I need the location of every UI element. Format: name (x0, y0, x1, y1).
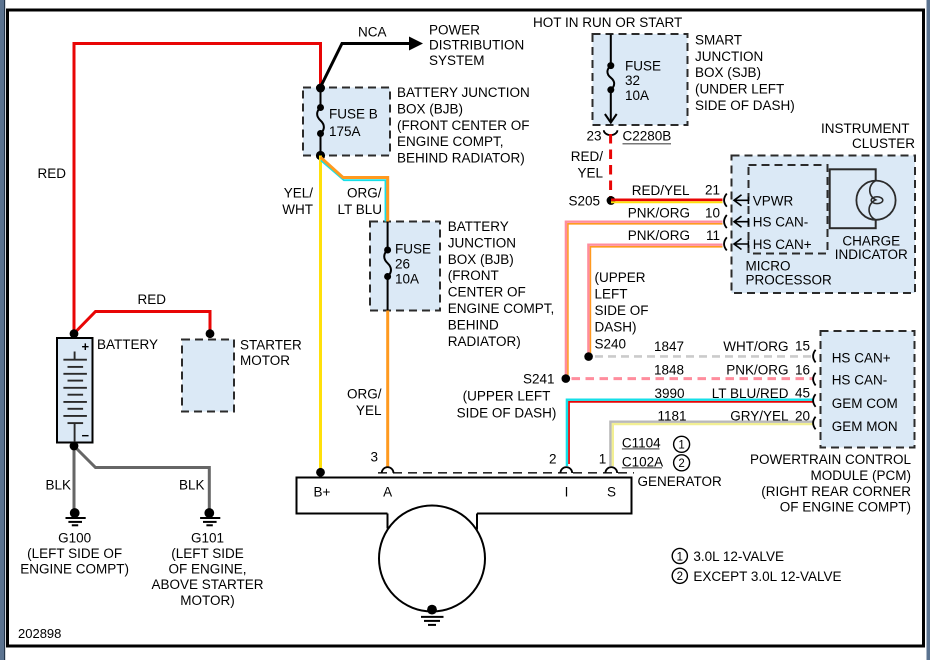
svg-text:YEL: YEL (356, 403, 382, 418)
svg-text:JUNCTION: JUNCTION (448, 235, 516, 250)
svg-text:ENGINE COMPT,: ENGINE COMPT, (448, 301, 555, 316)
svg-text:S240: S240 (595, 337, 627, 352)
svg-text:CENTER OF: CENTER OF (448, 285, 526, 300)
svg-text:10A: 10A (395, 271, 419, 286)
svg-text:EXCEPT 3.0L 12-VALVE: EXCEPT 3.0L 12-VALVE (693, 569, 841, 584)
svg-text:RED/: RED/ (571, 149, 604, 164)
svg-text:15: 15 (795, 338, 810, 353)
svg-text:1: 1 (599, 451, 607, 466)
svg-text:202898: 202898 (18, 626, 61, 641)
svg-text:ENGINE COMPT,: ENGINE COMPT, (397, 134, 504, 149)
svg-text:GEM MON: GEM MON (832, 419, 898, 434)
svg-text:(UPPER LEFT: (UPPER LEFT (463, 388, 551, 403)
svg-text:MOTOR: MOTOR (240, 353, 290, 368)
svg-text:32: 32 (625, 73, 640, 88)
svg-text:1181: 1181 (657, 408, 686, 423)
svg-text:HS CAN-: HS CAN- (753, 215, 809, 230)
svg-text:S: S (607, 485, 616, 500)
svg-text:(LEFT SIDE OF: (LEFT SIDE OF (27, 546, 122, 561)
svg-text:SIDE OF: SIDE OF (595, 303, 649, 318)
svg-text:ORG/: ORG/ (347, 387, 382, 402)
svg-text:WHT: WHT (282, 202, 313, 217)
svg-text:21: 21 (705, 183, 720, 198)
svg-text:OF ENGINE COMPT): OF ENGINE COMPT) (780, 500, 911, 515)
svg-text:G101: G101 (191, 530, 224, 545)
svg-text:STARTER: STARTER (240, 338, 302, 353)
svg-text:MOTOR): MOTOR) (180, 593, 235, 608)
svg-text:2: 2 (677, 571, 683, 583)
svg-text:HS CAN+: HS CAN+ (832, 351, 891, 366)
svg-text:(FRONT: (FRONT (448, 268, 499, 283)
svg-text:PNK/ORG: PNK/ORG (628, 228, 690, 243)
svg-text:(UPPER: (UPPER (595, 270, 646, 285)
svg-text:ABOVE STARTER: ABOVE STARTER (151, 577, 263, 592)
svg-text:2: 2 (549, 451, 557, 466)
svg-text:LEFT: LEFT (595, 287, 628, 302)
svg-text:POWER: POWER (429, 23, 480, 38)
svg-text:3: 3 (370, 450, 378, 465)
svg-text:10A: 10A (625, 88, 649, 103)
svg-text:POWERTRAIN CONTROL: POWERTRAIN CONTROL (750, 452, 912, 467)
svg-text:ENGINE COMPT): ENGINE COMPT) (20, 562, 129, 577)
svg-text:BATTERY JUNCTION: BATTERY JUNCTION (397, 85, 530, 100)
svg-text:PROCESSOR: PROCESSOR (746, 273, 833, 288)
svg-text:BLK: BLK (179, 478, 205, 493)
svg-text:SMART: SMART (695, 33, 742, 48)
svg-text:INDICATOR: INDICATOR (835, 247, 908, 262)
svg-text:JUNCTION: JUNCTION (695, 49, 763, 64)
svg-text:+: + (82, 339, 90, 354)
svg-text:FUSE: FUSE (625, 59, 661, 74)
svg-text:1848: 1848 (654, 362, 684, 377)
svg-text:S205: S205 (568, 193, 600, 208)
svg-text:OF ENGINE,: OF ENGINE, (168, 562, 246, 577)
svg-text:1: 1 (677, 551, 683, 563)
svg-text:175A: 175A (329, 124, 361, 139)
svg-text:45: 45 (795, 385, 810, 400)
svg-text:20: 20 (795, 408, 810, 423)
svg-text:FUSE B: FUSE B (329, 107, 378, 122)
svg-text:MODULE (PCM): MODULE (PCM) (811, 468, 912, 483)
svg-text:RADIATOR): RADIATOR) (448, 334, 521, 349)
svg-text:GRY/YEL: GRY/YEL (730, 408, 789, 423)
svg-text:C2280B: C2280B (623, 129, 672, 144)
svg-text:I: I (565, 485, 569, 500)
svg-text:BATTERY: BATTERY (448, 219, 509, 234)
svg-text:10: 10 (705, 206, 720, 221)
svg-text:MICRO: MICRO (746, 259, 791, 274)
svg-text:BOX (BJB): BOX (BJB) (397, 101, 463, 116)
svg-text:BEHIND: BEHIND (448, 317, 499, 332)
svg-text:(FRONT CENTER OF: (FRONT CENTER OF (397, 118, 530, 133)
svg-text:3.0L 12-VALVE: 3.0L 12-VALVE (693, 549, 784, 564)
svg-text:HS CAN+: HS CAN+ (753, 237, 812, 252)
svg-text:NCA: NCA (358, 25, 387, 40)
svg-text:DASH): DASH) (595, 320, 637, 335)
svg-text:A: A (383, 485, 392, 500)
svg-text:FUSE: FUSE (395, 242, 431, 257)
svg-text:PNK/ORG: PNK/ORG (628, 206, 690, 221)
svg-text:16: 16 (795, 362, 810, 377)
svg-text:(LEFT SIDE: (LEFT SIDE (171, 546, 244, 561)
svg-text:GENERATOR: GENERATOR (638, 474, 723, 489)
svg-text:26: 26 (395, 257, 410, 272)
svg-text:1: 1 (678, 440, 684, 452)
svg-text:BLK: BLK (46, 478, 72, 493)
svg-text:(RIGHT REAR CORNER: (RIGHT REAR CORNER (761, 484, 911, 499)
svg-text:B+: B+ (314, 485, 331, 500)
svg-text:YEL/: YEL/ (284, 186, 314, 201)
svg-text:SIDE OF DASH): SIDE OF DASH) (457, 405, 557, 420)
svg-text:RED/YEL: RED/YEL (632, 183, 690, 198)
svg-text:INSTRUMENT: INSTRUMENT (821, 121, 910, 136)
svg-text:3990: 3990 (654, 386, 684, 401)
svg-text:ORG/: ORG/ (347, 186, 382, 201)
svg-text:RED: RED (38, 166, 67, 181)
svg-text:LT BLU: LT BLU (337, 202, 382, 217)
svg-text:SYSTEM: SYSTEM (429, 53, 485, 68)
svg-text:11: 11 (706, 228, 720, 243)
svg-text:VPWR: VPWR (753, 193, 794, 208)
svg-text:GEM COM: GEM COM (832, 396, 898, 411)
svg-text:CLUSTER: CLUSTER (852, 136, 915, 151)
svg-text:BOX (BJB): BOX (BJB) (448, 252, 514, 267)
svg-text:G100: G100 (58, 530, 91, 545)
svg-text:HS CAN-: HS CAN- (832, 373, 888, 388)
svg-text:(UNDER LEFT: (UNDER LEFT (695, 82, 784, 97)
svg-text:−: − (82, 428, 90, 443)
svg-text:BEHIND RADIATOR): BEHIND RADIATOR) (397, 151, 525, 166)
svg-text:2: 2 (678, 458, 684, 470)
svg-text:PNK/ORG: PNK/ORG (726, 362, 788, 377)
svg-text:SIDE OF DASH): SIDE OF DASH) (695, 98, 795, 113)
svg-text:YEL: YEL (577, 166, 603, 181)
svg-text:BOX (SJB): BOX (SJB) (695, 65, 761, 80)
svg-text:HOT IN RUN OR START: HOT IN RUN OR START (533, 15, 682, 30)
svg-text:DISTRIBUTION: DISTRIBUTION (429, 38, 524, 53)
svg-text:S241: S241 (523, 372, 555, 387)
svg-text:BATTERY: BATTERY (97, 337, 158, 352)
svg-text:LT BLU/RED: LT BLU/RED (712, 386, 789, 401)
svg-text:WHT/ORG: WHT/ORG (723, 339, 788, 354)
svg-text:1847: 1847 (654, 339, 684, 354)
svg-text:RED: RED (138, 292, 167, 307)
svg-text:23: 23 (586, 129, 601, 144)
